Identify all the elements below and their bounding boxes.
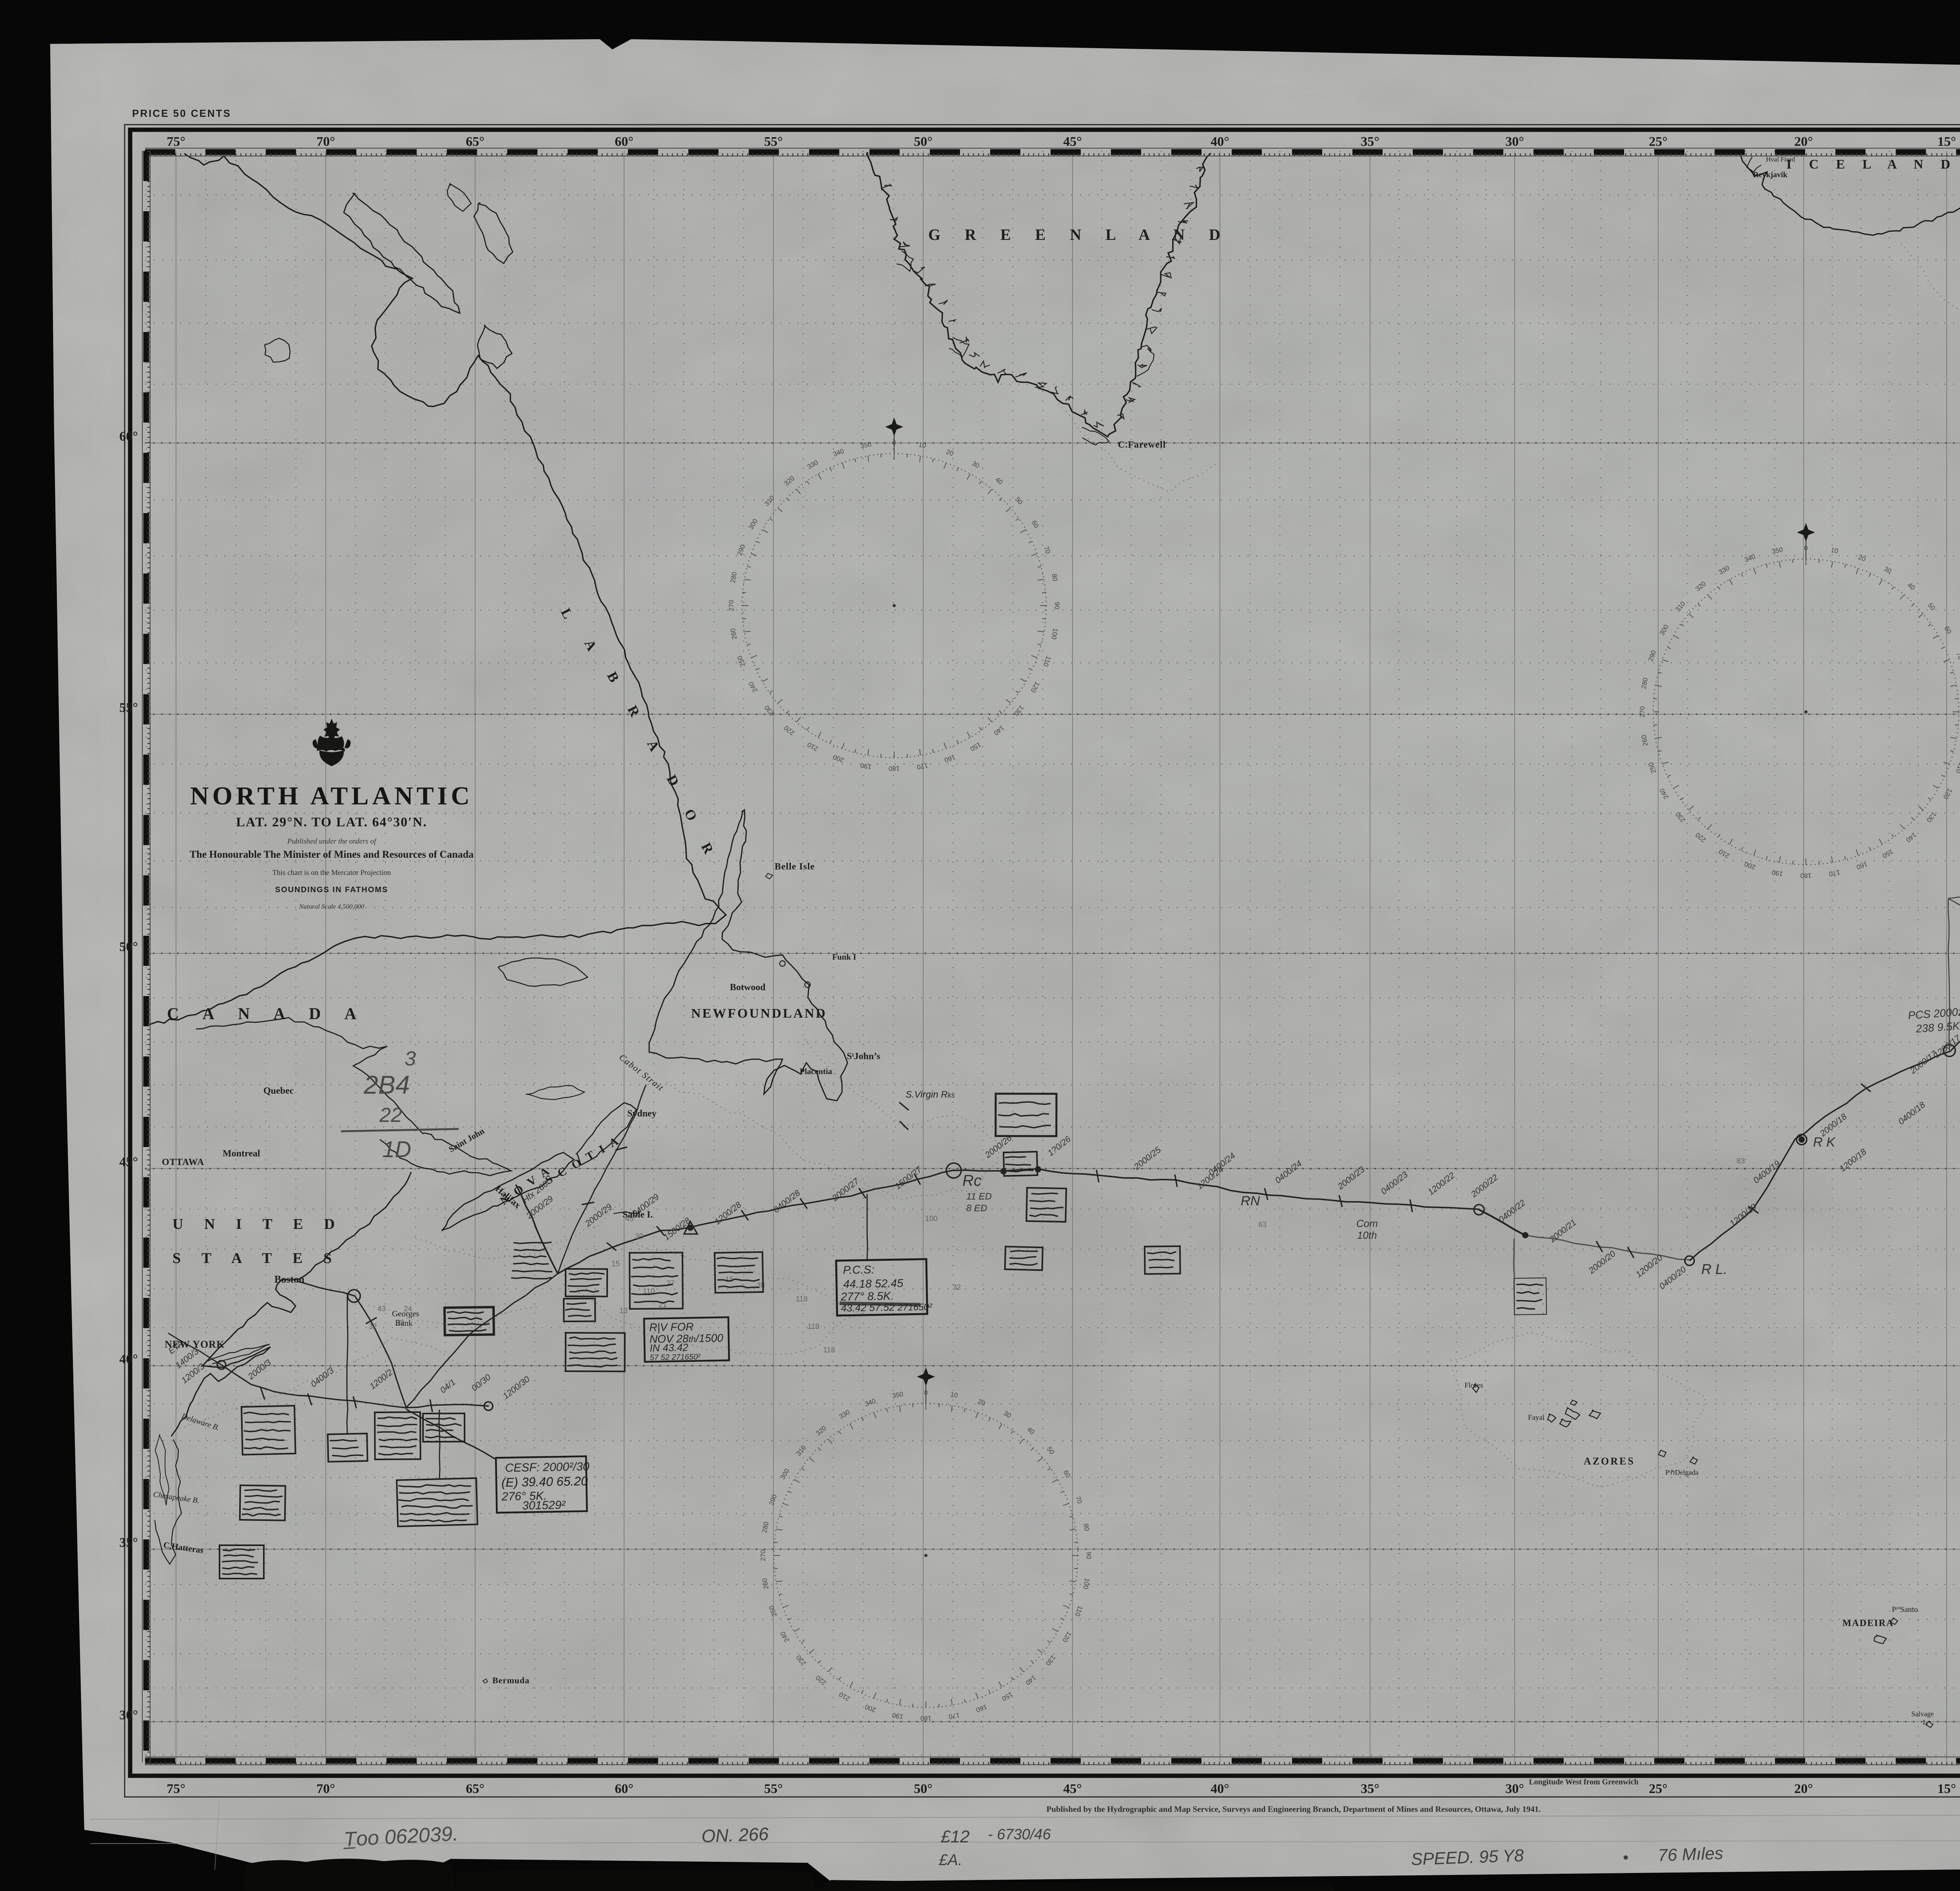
svg-text:55°: 55° [764, 134, 783, 149]
svg-text:S.Virgin Rks: S.Virgin Rks [906, 1089, 955, 1100]
svg-text:SOUNDINGS IN FATHOMS: SOUNDINGS IN FATHOMS [275, 886, 388, 894]
svg-text:2B4: 2B4 [363, 1070, 410, 1099]
svg-text:NEWFOUNDLAND: NEWFOUNDLAND [691, 1006, 827, 1021]
svg-text:8 ED: 8 ED [966, 1203, 987, 1214]
svg-text:35°: 35° [119, 1535, 138, 1550]
svg-text:AZORES: AZORES [1584, 1455, 1635, 1467]
svg-text:S T A T E S: S T A T E S [172, 1250, 340, 1267]
svg-text:1D: 1D [382, 1137, 411, 1162]
svg-text:11 ED: 11 ED [966, 1191, 992, 1202]
svg-text:U N I T E D: U N I T E D [172, 1216, 343, 1232]
svg-text:15°: 15° [1937, 134, 1956, 149]
svg-text:Iₛ: Iₛ [1923, 1719, 1928, 1726]
svg-text:100: 100 [925, 1215, 938, 1223]
svg-text:NEW YORK: NEW YORK [165, 1339, 225, 1350]
svg-text:60°: 60° [119, 429, 138, 444]
svg-text:IN 43.42: IN 43.42 [650, 1341, 688, 1354]
svg-text:Natural Scale 4,500,000: Natural Scale 4,500,000 [299, 903, 365, 910]
svg-text:G R E E N L A N D: G R E E N L A N D [928, 226, 1230, 243]
svg-text:70°: 70° [316, 1782, 335, 1796]
svg-text:SᵗJohn’s: SᵗJohn’s [847, 1051, 880, 1062]
svg-text:270: 270 [728, 600, 735, 611]
svg-text:180: 180 [889, 765, 900, 772]
svg-text:25°: 25° [1649, 134, 1668, 149]
svg-text:60°: 60° [615, 1782, 633, 1796]
svg-text:30: 30 [635, 1232, 643, 1241]
svg-text:Longitude West from Greenwi: Longitude West from Greenwich [1529, 1778, 1638, 1786]
svg-text:NORTH ATLANTIC: NORTH ATLANTIC [190, 782, 473, 810]
svg-text:SPEED. 95 Y8: SPEED. 95 Y8 [1411, 1846, 1524, 1869]
svg-text:63: 63 [1258, 1221, 1267, 1229]
svg-text:50°: 50° [914, 134, 933, 149]
svg-text:20°: 20° [1794, 1782, 1813, 1796]
svg-text:Georges: Georges [392, 1309, 419, 1318]
svg-text:Published under the orders of: Published under the orders of [287, 837, 377, 846]
svg-text:R K: R K [1813, 1135, 1836, 1150]
svg-text:MADEIRA: MADEIRA [1842, 1618, 1894, 1628]
svg-text:Salvage: Salvage [1911, 1710, 1934, 1718]
svg-text:PRICE 50 CENTS: PRICE 50 CENTS [132, 107, 231, 119]
svg-text:10th: 10th [1357, 1229, 1377, 1241]
svg-text:50°: 50° [914, 1782, 933, 1796]
svg-text:C A N A D A: C A N A D A [167, 1005, 367, 1023]
svg-text:70°: 70° [316, 134, 335, 149]
svg-text:65°: 65° [466, 134, 485, 149]
svg-text:£12: £12 [940, 1827, 969, 1846]
svg-text:15°: 15° [1937, 1782, 1956, 1796]
svg-text:P.C.S:: P.C.S: [843, 1263, 875, 1276]
svg-text:Placentia: Placentia [800, 1067, 832, 1076]
svg-text:43: 43 [377, 1305, 386, 1313]
svg-text:45°: 45° [1063, 134, 1082, 149]
svg-text:75°: 75° [167, 134, 185, 149]
svg-text:Com: Com [1356, 1218, 1378, 1229]
svg-text:The Honourable The Minister of: The Honourable The Minister of Mines and… [190, 849, 474, 860]
svg-text:27: 27 [666, 1279, 675, 1288]
svg-text:270: 270 [759, 1550, 767, 1561]
svg-text:Hval Fiord: Hval Fiord [1766, 156, 1795, 163]
svg-text:180: 180 [1800, 872, 1811, 879]
svg-text:32: 32 [953, 1283, 961, 1292]
svg-text:35°: 35° [1361, 134, 1379, 149]
svg-text:Rc: Rc [962, 1172, 982, 1189]
svg-text:LAT. 29°N. TO LAT. 64°30′N.: LAT. 29°N. TO LAT. 64°30′N. [236, 815, 427, 829]
svg-text:75°: 75° [167, 1782, 185, 1796]
svg-text:Montreal: Montreal [223, 1149, 260, 1159]
svg-text:This chart is on the Mercator: This chart is on the Mercator Projection [272, 869, 391, 877]
svg-text:60°: 60° [615, 134, 633, 149]
svg-text:40°: 40° [1210, 1782, 1229, 1796]
svg-text:20°: 20° [1794, 134, 1813, 149]
svg-text:270: 270 [1639, 706, 1646, 717]
svg-text:25°: 25° [1649, 1782, 1668, 1796]
svg-text:PᵗºSanto: PᵗºSanto [1892, 1605, 1918, 1614]
svg-text:Funk I: Funk I [832, 952, 856, 962]
svg-text:30°: 30° [1505, 1782, 1524, 1796]
svg-text:40°: 40° [119, 1352, 138, 1367]
svg-text:Belle Isle: Belle Isle [775, 862, 815, 872]
svg-text:30°: 30° [119, 1708, 138, 1722]
svg-text:45°: 45° [119, 1155, 138, 1169]
svg-text:PᵗℎDelgada: PᵗℎDelgada [1665, 1468, 1699, 1476]
svg-text:13: 13 [619, 1307, 628, 1315]
svg-text:ON. 266: ON. 266 [701, 1824, 769, 1846]
svg-text:30°: 30° [1505, 134, 1524, 149]
svg-text:Fayal: Fayal [1528, 1414, 1544, 1422]
svg-text:Botwood: Botwood [730, 982, 766, 993]
svg-text:118: 118 [823, 1346, 835, 1354]
svg-text:- 6730/46: - 6730/46 [988, 1826, 1051, 1843]
svg-text:Flores: Flores [1465, 1381, 1483, 1390]
svg-text:45°: 45° [1063, 1782, 1082, 1796]
svg-text:10: 10 [1830, 546, 1839, 555]
svg-text:80: 80 [1050, 573, 1059, 582]
svg-text:Sydney: Sydney [627, 1109, 657, 1119]
svg-text:10: 10 [950, 1391, 958, 1399]
svg-text:83: 83 [1737, 1157, 1745, 1165]
svg-text:I C E L A N D: I C E L A N D [1786, 157, 1957, 172]
svg-text:40°: 40° [1210, 134, 1229, 149]
svg-text:Reykjavik: Reykjavik [1753, 171, 1788, 179]
svg-text:CESF: 2000²/30: CESF: 2000²/30 [505, 1460, 590, 1475]
svg-text:Published by the Hydrographic: Published by the Hydrographic and Map Se… [1046, 1804, 1541, 1814]
svg-text:50°: 50° [119, 940, 138, 954]
svg-text:80: 80 [1082, 1523, 1091, 1532]
svg-text:Bermuda: Bermuda [492, 1675, 530, 1685]
svg-text:119: 119 [808, 1323, 819, 1331]
svg-text:(E) 39.40 65.20: (E) 39.40 65.20 [501, 1474, 588, 1490]
svg-text:57 52 271650²: 57 52 271650² [650, 1352, 701, 1362]
svg-text:76 Mıles: 76 Mıles [1658, 1844, 1724, 1865]
svg-text:£A.: £A. [938, 1851, 962, 1869]
svg-text:55°: 55° [119, 701, 138, 715]
svg-text:Sable I.: Sable I. [622, 1210, 653, 1220]
svg-text:C.Farewell: C.Farewell [1118, 440, 1166, 450]
svg-text:32: 32 [368, 1323, 377, 1331]
svg-text:10: 10 [918, 441, 927, 450]
svg-text:22: 22 [379, 1104, 402, 1127]
svg-text:R L.: R L. [1701, 1261, 1727, 1277]
svg-text:55°: 55° [764, 1782, 783, 1796]
svg-text:OTTAWA: OTTAWA [162, 1157, 204, 1167]
svg-text:65°: 65° [466, 1782, 485, 1796]
svg-text:•: • [1623, 1849, 1628, 1866]
svg-text:90: 90 [1053, 602, 1061, 610]
svg-text:180: 180 [920, 1715, 931, 1722]
svg-text:Quebec: Quebec [263, 1086, 294, 1096]
svg-text:44.18 52.45: 44.18 52.45 [843, 1277, 904, 1291]
svg-text:3: 3 [405, 1047, 416, 1070]
svg-text:RN: RN [1241, 1194, 1260, 1209]
svg-text:301529²: 301529² [522, 1499, 566, 1512]
svg-text:Bank: Bank [395, 1318, 413, 1328]
svg-text:R|V FOR: R|V FOR [649, 1321, 694, 1334]
svg-text:118: 118 [796, 1295, 808, 1303]
svg-text:Boston: Boston [274, 1274, 305, 1285]
svg-text:90: 90 [1085, 1552, 1093, 1559]
svg-text:35°: 35° [1361, 1782, 1379, 1796]
svg-text:15: 15 [612, 1260, 620, 1268]
